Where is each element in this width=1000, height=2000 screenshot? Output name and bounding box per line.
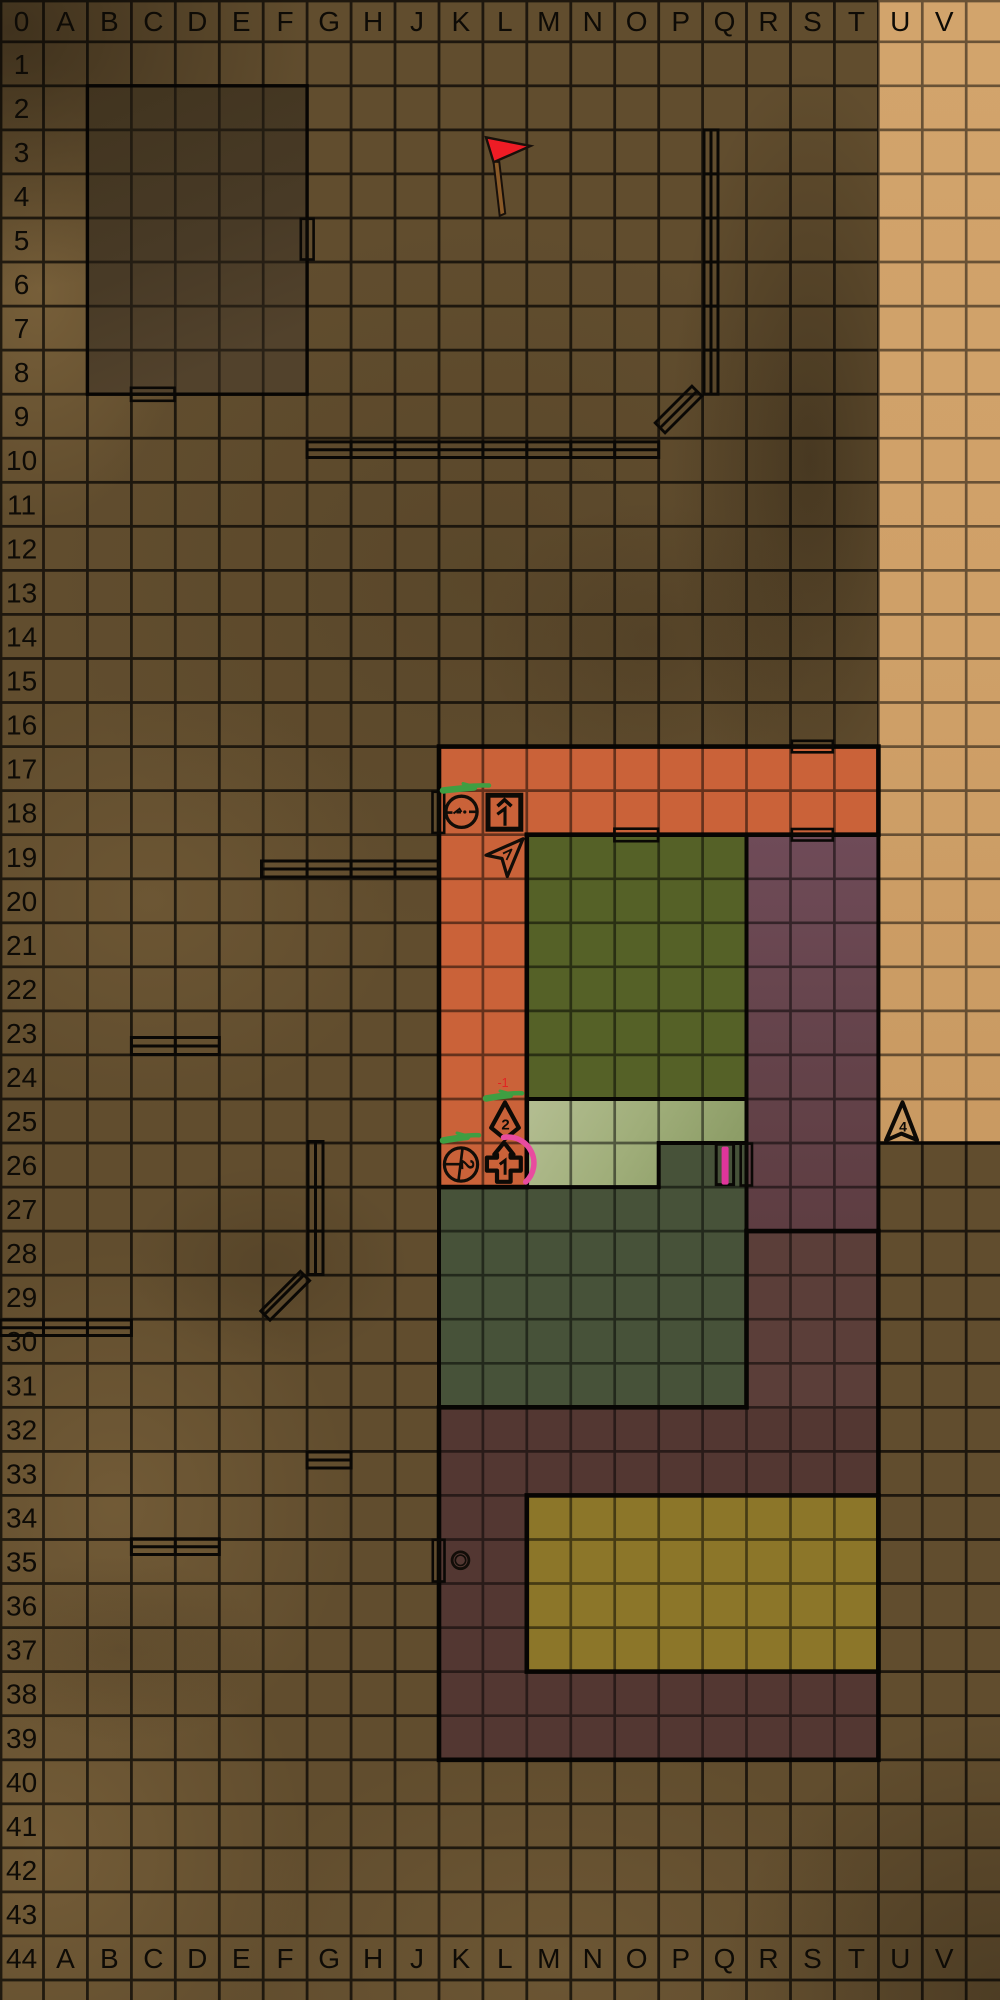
svg-text:-1: -1 xyxy=(497,1076,508,1090)
svg-text:0: 0 xyxy=(14,6,30,37)
svg-text:31: 31 xyxy=(6,1370,37,1401)
svg-text:N: N xyxy=(583,1943,603,1974)
svg-text:7: 7 xyxy=(14,313,30,344)
svg-text:P: P xyxy=(671,6,690,37)
svg-text:K: K xyxy=(452,1943,471,1974)
svg-text:L: L xyxy=(497,6,513,37)
svg-text:O: O xyxy=(626,6,648,37)
svg-text:33: 33 xyxy=(6,1458,37,1489)
svg-text:B: B xyxy=(100,6,119,37)
svg-text:S: S xyxy=(803,6,822,37)
svg-text:2: 2 xyxy=(501,1117,509,1134)
svg-text:28: 28 xyxy=(6,1238,37,1269)
svg-text:9: 9 xyxy=(14,401,30,432)
svg-text:F: F xyxy=(277,6,294,37)
svg-text:21: 21 xyxy=(6,930,37,961)
svg-text:A: A xyxy=(56,1943,75,1974)
svg-text:26: 26 xyxy=(6,1150,37,1181)
svg-text:C: C xyxy=(143,6,163,37)
svg-text:D: D xyxy=(187,6,207,37)
svg-text:L: L xyxy=(497,1943,513,1974)
svg-text:A: A xyxy=(56,6,75,37)
svg-text:35: 35 xyxy=(6,1547,37,1578)
svg-text:16: 16 xyxy=(6,710,37,741)
svg-text:20: 20 xyxy=(6,886,37,917)
svg-text:M: M xyxy=(537,6,560,37)
svg-text:H: H xyxy=(363,6,383,37)
svg-text:J: J xyxy=(410,1943,424,1974)
svg-text:C: C xyxy=(143,1943,163,1974)
svg-text:36: 36 xyxy=(6,1591,37,1622)
svg-text:40: 40 xyxy=(6,1767,37,1798)
svg-text:T: T xyxy=(848,1943,865,1974)
svg-text:34: 34 xyxy=(6,1503,37,1534)
svg-text:H: H xyxy=(363,1943,383,1974)
svg-text:12: 12 xyxy=(6,533,37,564)
svg-text:13: 13 xyxy=(6,577,37,608)
svg-text:43: 43 xyxy=(6,1899,37,1930)
svg-text:G: G xyxy=(318,6,340,37)
svg-text:38: 38 xyxy=(6,1679,37,1710)
svg-text:E: E xyxy=(232,1943,251,1974)
svg-text:O: O xyxy=(626,1943,648,1974)
svg-text:14: 14 xyxy=(6,622,37,653)
svg-text:32: 32 xyxy=(6,1414,37,1445)
svg-text:30: 30 xyxy=(6,1326,37,1357)
svg-text:Q: Q xyxy=(714,6,736,37)
svg-text:37: 37 xyxy=(6,1635,37,1666)
svg-text:29: 29 xyxy=(6,1282,37,1313)
svg-text:T: T xyxy=(848,6,865,37)
svg-text:2: 2 xyxy=(14,93,30,124)
svg-text:P: P xyxy=(671,1943,690,1974)
svg-text:V: V xyxy=(935,6,954,37)
svg-text:27: 27 xyxy=(6,1194,37,1225)
svg-text:39: 39 xyxy=(6,1723,37,1754)
svg-text:R: R xyxy=(758,6,778,37)
svg-text:18: 18 xyxy=(6,798,37,829)
svg-text:17: 17 xyxy=(6,754,37,785)
svg-text:D: D xyxy=(187,1943,207,1974)
svg-text:Q: Q xyxy=(714,1943,736,1974)
svg-text:42: 42 xyxy=(6,1855,37,1886)
svg-text:8: 8 xyxy=(14,357,30,388)
svg-text:4: 4 xyxy=(14,181,30,212)
svg-text:6: 6 xyxy=(14,269,30,300)
svg-text:U: U xyxy=(890,6,910,37)
svg-text:B: B xyxy=(100,1943,119,1974)
svg-text:2: 2 xyxy=(456,1159,477,1170)
svg-text:5: 5 xyxy=(14,225,30,256)
svg-text:J: J xyxy=(410,6,424,37)
svg-text:S: S xyxy=(803,1943,822,1974)
svg-text:19: 19 xyxy=(6,842,37,873)
svg-text:11: 11 xyxy=(7,489,36,520)
svg-text:K: K xyxy=(452,6,471,37)
svg-text:41: 41 xyxy=(6,1811,37,1842)
svg-text:25: 25 xyxy=(6,1106,37,1137)
svg-text:F: F xyxy=(277,1943,294,1974)
svg-text:24: 24 xyxy=(6,1062,37,1093)
svg-text:G: G xyxy=(318,1943,340,1974)
svg-text:M: M xyxy=(537,1943,560,1974)
svg-text:1: 1 xyxy=(14,49,30,80)
svg-text:N: N xyxy=(583,6,603,37)
svg-text:22: 22 xyxy=(6,974,37,1005)
svg-text:44: 44 xyxy=(6,1943,37,1974)
svg-text:15: 15 xyxy=(6,666,37,697)
svg-text:10: 10 xyxy=(6,445,37,476)
svg-text:V: V xyxy=(935,1943,954,1974)
svg-text:3: 3 xyxy=(14,137,30,168)
svg-text:R: R xyxy=(758,1943,778,1974)
svg-text:U: U xyxy=(890,1943,910,1974)
svg-text:E: E xyxy=(232,6,251,37)
svg-text:23: 23 xyxy=(6,1018,37,1049)
svg-text:4: 4 xyxy=(899,1119,907,1135)
